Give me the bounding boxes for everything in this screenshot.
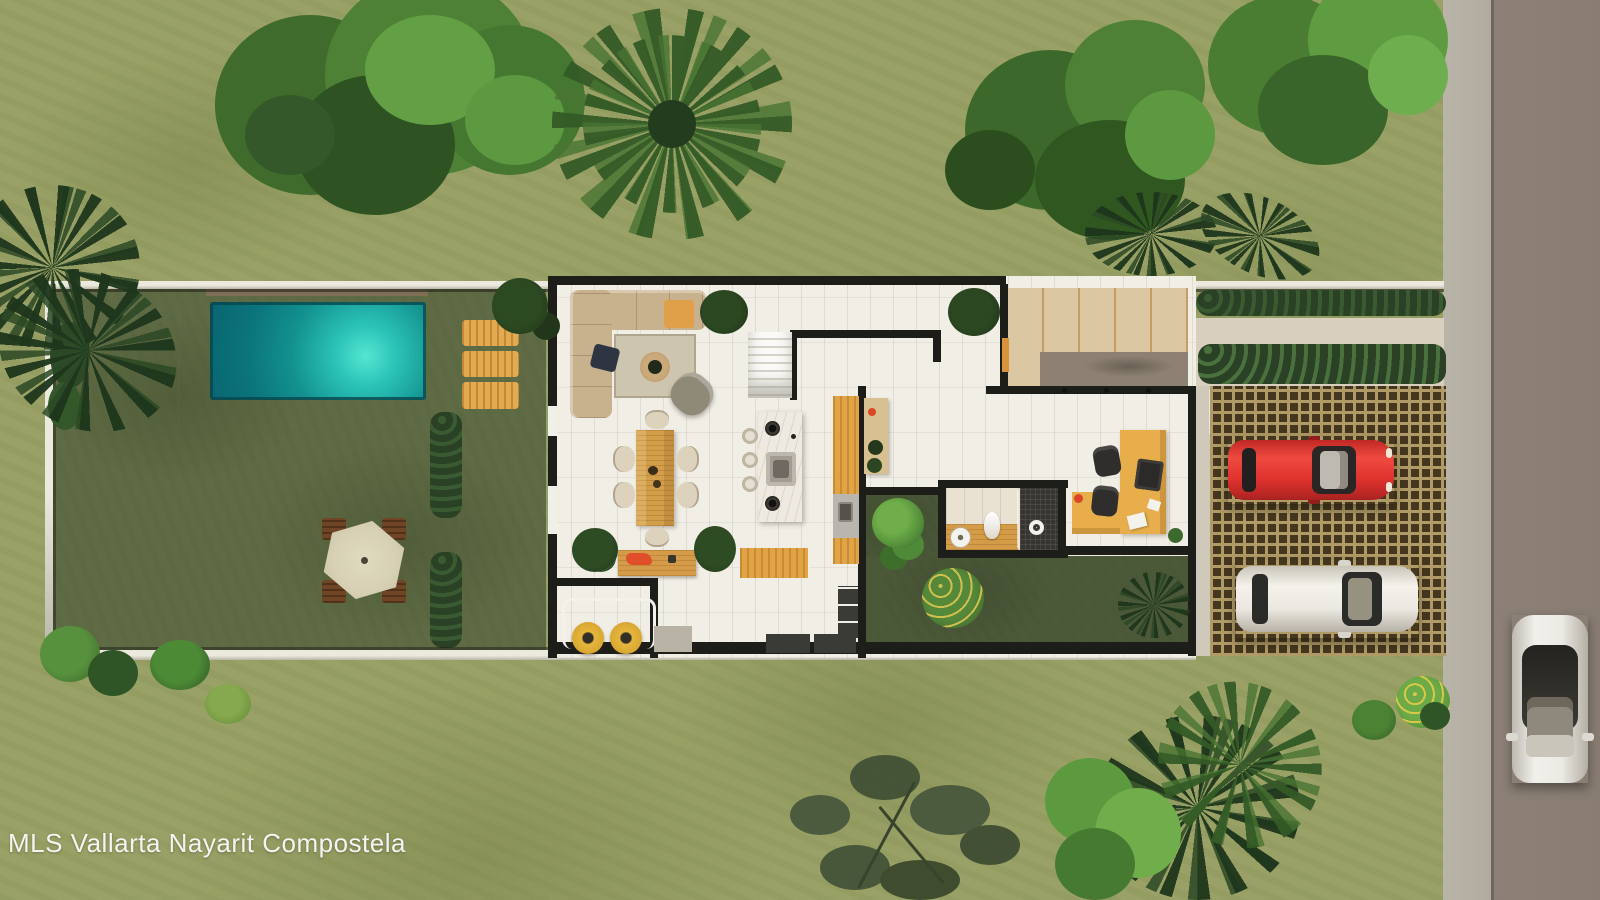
palm-grove-left [0, 185, 190, 430]
island-knob [791, 434, 796, 439]
car-rear-glass [1242, 448, 1256, 492]
counter-sink-basin [838, 502, 853, 522]
indoor-plant [700, 290, 748, 334]
palmetto-cluster [1085, 192, 1330, 277]
sidewalk [1443, 0, 1492, 900]
bar-stool [742, 428, 758, 444]
pool-coping-edge [206, 289, 428, 296]
car-mirror [1582, 733, 1594, 741]
car-interior [1320, 451, 1348, 489]
office-plant [1168, 528, 1183, 543]
entry-wall [1000, 284, 1008, 388]
shower [1020, 488, 1058, 550]
cooktop-burner [765, 421, 780, 436]
island-sink-basin [773, 460, 789, 478]
house-wall-top [548, 276, 1006, 285]
terrace-pad [654, 626, 692, 652]
car-mirror [1506, 733, 1518, 741]
shower-glass [1017, 490, 1019, 548]
door-pivot [1062, 388, 1067, 393]
house-wall-left [548, 276, 557, 658]
bar-stool [742, 452, 758, 468]
bar-stool [742, 476, 758, 492]
vanity-sink [950, 527, 971, 548]
laundry-wall-top [548, 578, 658, 586]
storage-cabinet [740, 548, 810, 578]
garden-hedge [430, 412, 462, 518]
tree-canopy [1198, 0, 1448, 180]
tree-canopy [205, 0, 585, 255]
sun-lounger [462, 351, 519, 377]
dining-chair [645, 528, 669, 547]
bush [150, 640, 210, 690]
office-chair [1092, 444, 1123, 478]
terrace-pad-dark [766, 634, 810, 653]
house-wall-right [1188, 386, 1196, 656]
car-windshield [1526, 735, 1574, 757]
garden-walkway [458, 424, 546, 652]
palm-tree [552, 8, 792, 240]
door-pivot [1146, 388, 1151, 393]
office-chair [1091, 485, 1120, 518]
bathroom-wall-top [938, 480, 1068, 488]
door-pivot [1104, 388, 1109, 393]
console-flower [868, 408, 876, 416]
coffee-table-plant [648, 360, 662, 374]
watermark: MLS Vallarta Nayarit Compostela [8, 828, 406, 859]
sun-lounger [462, 382, 519, 409]
table-decor [653, 480, 661, 488]
dining-chair [677, 482, 699, 508]
kitchen-counter [833, 396, 859, 494]
decor-object [668, 555, 676, 563]
bush-cluster-bottom [1035, 748, 1185, 900]
street-car [1512, 615, 1588, 783]
bathroom-wall-bottom [938, 550, 1068, 558]
hedge-row [1198, 344, 1446, 384]
courtyard-wall [858, 487, 946, 495]
desk-flower [1074, 494, 1083, 503]
decor-sculpture [626, 553, 652, 565]
cooktop-burner [765, 496, 780, 511]
entry-door [1002, 338, 1009, 372]
kitchen-counter [833, 538, 859, 564]
bush [205, 684, 251, 724]
dining-chair [677, 446, 699, 472]
sofa-throw [664, 300, 694, 328]
console-plant [867, 458, 882, 473]
courtyard-bush [872, 498, 924, 548]
office-wall-bottom [1058, 546, 1196, 555]
dining-chair [645, 410, 669, 429]
swimming-pool [210, 302, 426, 400]
bush [1420, 702, 1450, 730]
deck-shrub [492, 278, 548, 334]
aerial-site-plan-rendering: MLS Vallarta Nayarit Compostela [0, 0, 1600, 900]
hedge-row [1196, 290, 1446, 316]
car-headlight [1386, 448, 1392, 458]
laundry-machine [572, 622, 604, 654]
stair-wall [790, 330, 940, 338]
shower-drain [1029, 520, 1044, 535]
bush [88, 650, 138, 696]
console-plant [868, 440, 883, 455]
hallway-plant [948, 288, 1000, 336]
dining-chair [613, 446, 635, 472]
toilet [984, 512, 1000, 539]
laundry-machine [610, 622, 642, 654]
terrace-pad-dark [838, 586, 858, 638]
staircase [748, 332, 792, 398]
car-headlight [1386, 482, 1392, 492]
courtyard-spiky-plant [1118, 572, 1190, 638]
bathroom-wall-left [938, 480, 946, 558]
dining-chair [613, 482, 635, 508]
window-left [548, 486, 557, 534]
window-left [548, 406, 557, 436]
sparse-tree-bottom [760, 735, 1030, 900]
indoor-plant [572, 528, 618, 572]
hall-wall-stub [933, 330, 941, 362]
courtyard-bush-flowering [922, 568, 984, 628]
indoor-plant [694, 526, 736, 572]
umbrella-pole [361, 557, 368, 564]
garden-hedge [430, 552, 462, 648]
car-interior [1348, 578, 1372, 620]
car-rear-glass [1252, 574, 1268, 624]
bush [1352, 700, 1396, 740]
entry-south-wall [986, 386, 1196, 394]
white-car [1236, 560, 1418, 638]
table-decor [648, 466, 658, 475]
dining-table [636, 430, 674, 526]
monitor [1134, 458, 1164, 491]
entry-mat [1040, 352, 1188, 388]
red-car [1228, 436, 1394, 504]
